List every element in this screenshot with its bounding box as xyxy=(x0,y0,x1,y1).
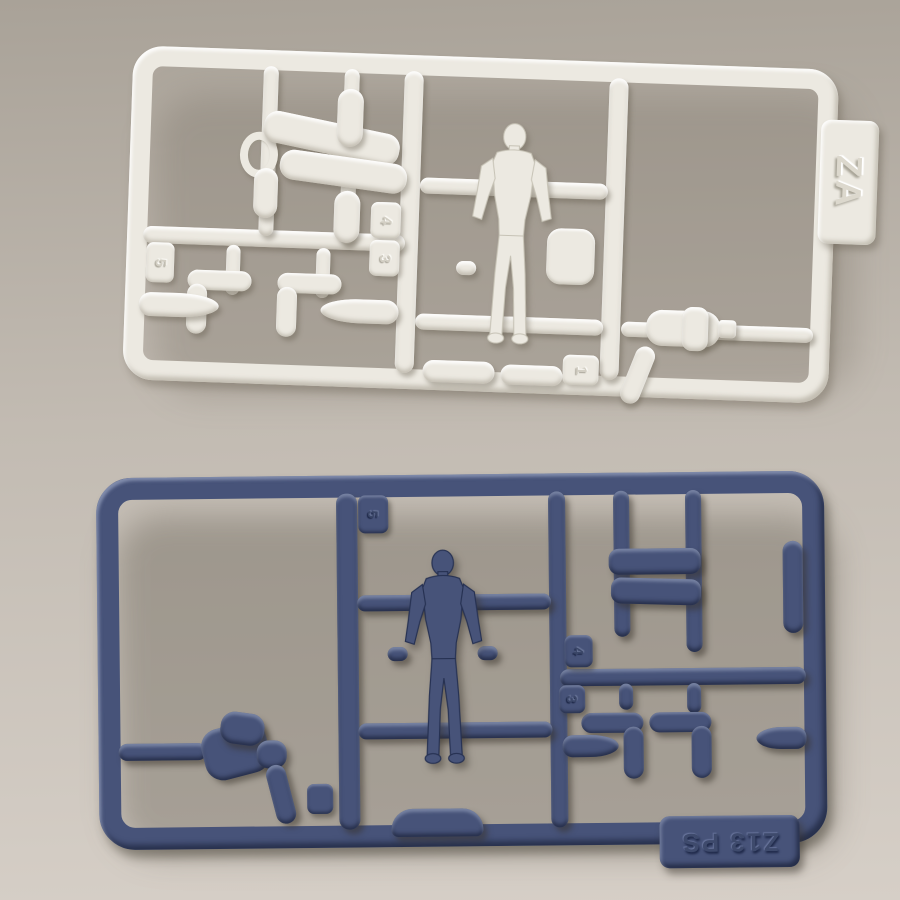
blue-cone-part-right xyxy=(756,727,806,750)
white-figure-part xyxy=(461,121,561,356)
gate-number-tab: 3 xyxy=(369,240,400,277)
gate-number-label: 5 xyxy=(152,258,169,267)
blue-runner-vertical-1 xyxy=(336,493,361,829)
white-cylinder-collar xyxy=(681,307,709,352)
white-sprue: 5 4 3 1 ZA xyxy=(122,45,839,403)
white-frame-lump-1 xyxy=(422,360,495,384)
white-forearm-part-a xyxy=(336,88,364,147)
blue-arm-part-upper xyxy=(609,548,701,575)
blue-gate-drop-1 xyxy=(619,684,633,710)
blank-gate-tab xyxy=(546,228,596,286)
blue-runner-bottomleft xyxy=(119,743,207,761)
blue-frame-hump-part xyxy=(391,808,483,837)
gate-number-label: 4 xyxy=(377,216,394,225)
gate-number-label: 3 xyxy=(564,695,580,703)
blue-torso-part-side xyxy=(257,740,287,768)
gate-number-label: 3 xyxy=(376,254,393,263)
sprue-code-tag: Z13 PS xyxy=(659,815,800,868)
sprue-letter-tag: ZA xyxy=(817,119,879,245)
gate-number-tab: 1 xyxy=(562,354,599,385)
gate-number-label: 4 xyxy=(571,647,587,655)
blue-figure-part xyxy=(399,546,489,777)
blank-gate-tab xyxy=(307,784,333,814)
gate-number-tab: 5 xyxy=(145,242,174,283)
blue-frame-inner-rail xyxy=(782,541,803,633)
sprue-letter-text: ZA xyxy=(826,155,870,210)
white-forearm-part-b xyxy=(333,190,361,243)
sprue-code-text: Z13 PS xyxy=(680,826,779,858)
white-forearm-part-c xyxy=(253,168,279,219)
gate-number-tab: 4 xyxy=(370,202,401,239)
blue-sprue: 5 4 3 Z13 PS xyxy=(96,471,828,851)
blue-arm-part-lower xyxy=(611,577,702,605)
blue-gate-drop-2 xyxy=(687,683,701,713)
gate-number-tab: 5 xyxy=(358,495,388,533)
white-connector-part xyxy=(718,320,737,339)
gate-number-label: 1 xyxy=(572,366,589,375)
white-frame-lump-2 xyxy=(500,364,563,386)
blue-runner-mid-right xyxy=(560,667,806,687)
gate-number-tab: 4 xyxy=(564,635,592,667)
photo-scene: 5 4 3 1 ZA xyxy=(0,0,900,900)
gate-number-label: 5 xyxy=(365,510,381,518)
gate-number-tab: 3 xyxy=(559,685,585,713)
